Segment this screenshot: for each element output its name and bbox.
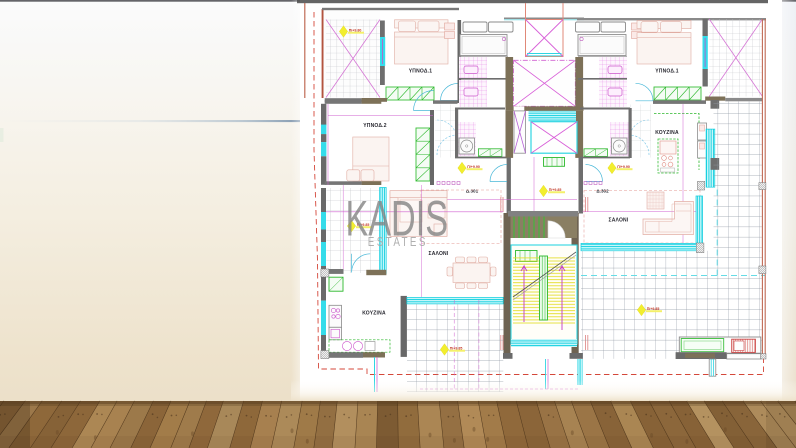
svg-text:Π/+9.90: Π/+9.90 — [617, 165, 630, 169]
svg-text:Π/+9.85: Π/+9.85 — [549, 188, 562, 192]
svg-text:ΣΑΛΟΝΙ: ΣΑΛΟΝΙ — [429, 251, 449, 257]
svg-text:Π/+9.85: Π/+9.85 — [647, 307, 660, 311]
svg-text:ΥΠΝΟΔ.1: ΥΠΝΟΔ.1 — [409, 69, 432, 75]
svg-text:ΚΟΥΖΙΝΑ: ΚΟΥΖΙΝΑ — [362, 311, 386, 317]
svg-text:Δ.302: Δ.302 — [596, 189, 609, 194]
svg-text:Π/+9.90: Π/+9.90 — [467, 165, 480, 169]
svg-text:Π/+9.85: Π/+9.85 — [450, 347, 463, 351]
svg-text:Π/+9.80: Π/+9.80 — [349, 29, 362, 33]
svg-text:ΥΠΝΟΔ.1: ΥΠΝΟΔ.1 — [655, 69, 678, 75]
svg-text:ΚΟΥΖΙΝΑ: ΚΟΥΖΙΝΑ — [655, 130, 679, 136]
svg-text:ΥΠΝΟΔ.2: ΥΠΝΟΔ.2 — [363, 123, 386, 129]
svg-text:ESTATES: ESTATES — [368, 235, 428, 249]
svg-text:Δ.301: Δ.301 — [466, 189, 479, 194]
svg-text:ΣΑΛΟΝΙ: ΣΑΛΟΝΙ — [609, 218, 629, 224]
